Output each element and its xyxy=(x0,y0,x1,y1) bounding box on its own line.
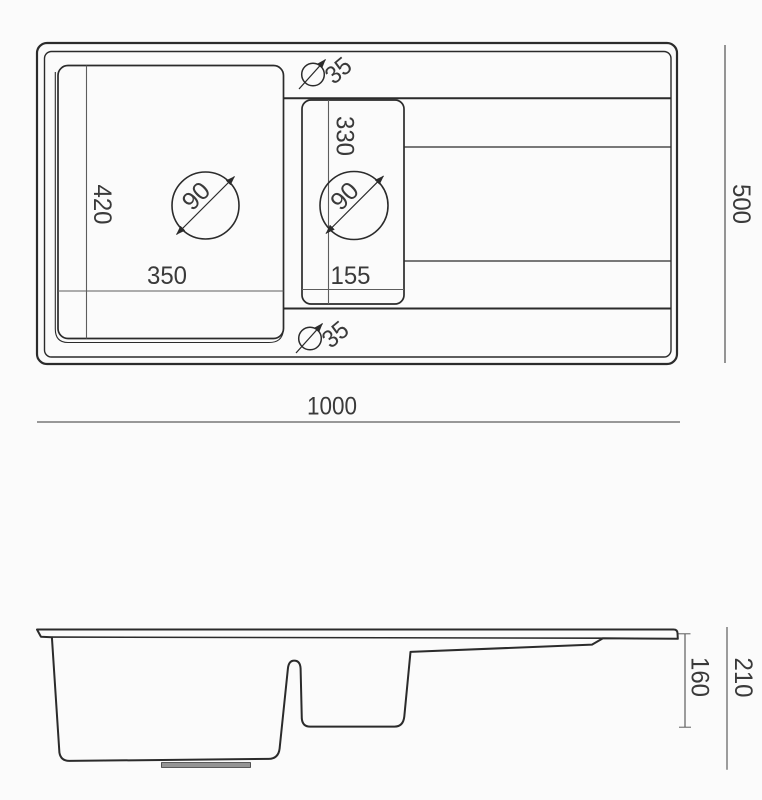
faucet-hole-top: 35 xyxy=(299,52,357,90)
side-view: 160 210 xyxy=(37,627,757,770)
main-bowl-depth-label: 420 xyxy=(88,185,116,225)
sink-profile-outline xyxy=(37,630,678,761)
sink-drawing-page: 420 350 90 330 155 90 35 35 1000 xyxy=(0,0,762,800)
faucet-hole-bottom: 35 xyxy=(296,316,354,354)
faucet-hole-top-label: 35 xyxy=(320,52,358,90)
bowl-depth-label: 160 xyxy=(686,657,714,697)
second-bowl-width-label: 155 xyxy=(331,262,371,290)
overall-depth-label: 210 xyxy=(729,658,757,698)
second-drain-diameter-label: 90 xyxy=(325,177,364,216)
overall-width-label: 1000 xyxy=(307,393,357,421)
drain-fitting xyxy=(162,763,251,768)
top-view: 420 350 90 330 155 90 35 35 1000 xyxy=(37,43,755,422)
rim-underside-line xyxy=(52,637,603,638)
overall-height-label: 500 xyxy=(727,184,755,224)
sink-technical-drawing: 420 350 90 330 155 90 35 35 1000 xyxy=(0,0,762,800)
faucet-hole-bottom-label: 35 xyxy=(317,316,355,354)
main-bowl-width-label: 350 xyxy=(147,262,187,290)
main-drain-diameter-label: 90 xyxy=(177,177,216,216)
second-bowl-depth-label: 330 xyxy=(331,116,359,156)
